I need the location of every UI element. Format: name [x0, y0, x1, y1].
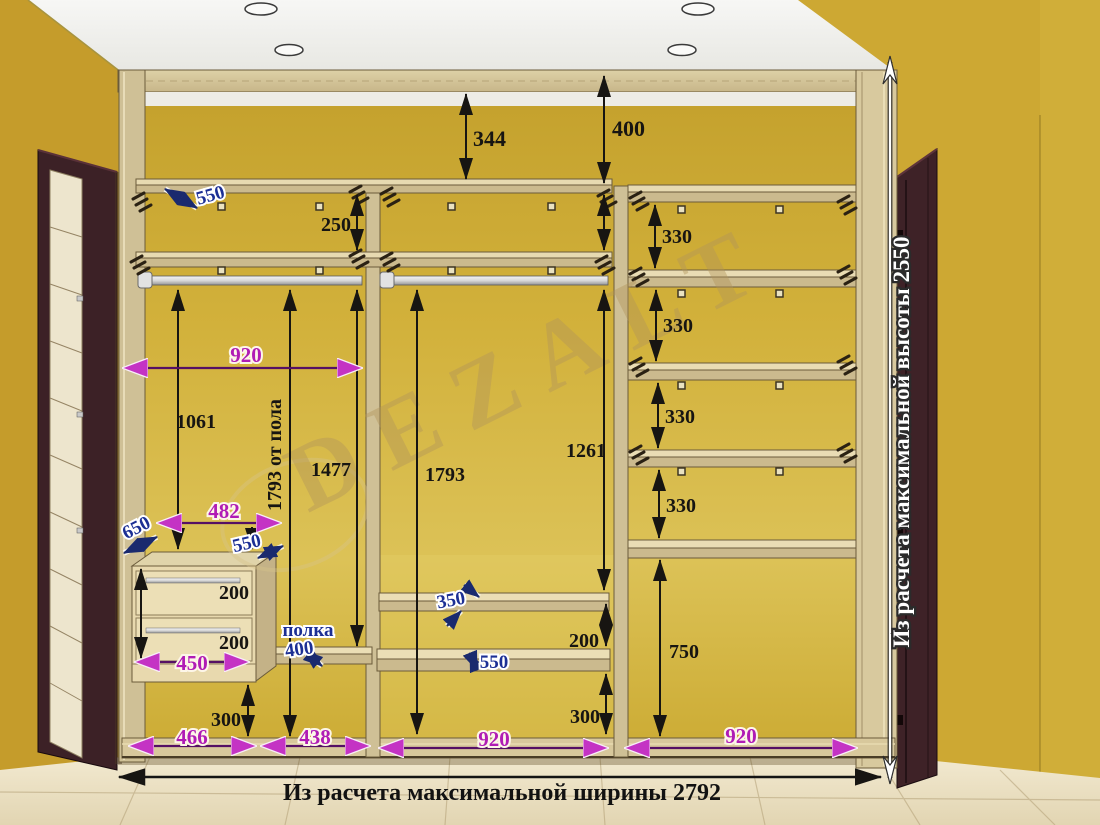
- s3-shelf-4-topface: [628, 540, 856, 548]
- second-shelf-front: [136, 258, 612, 267]
- wardrobe-drawing: DEZALT 344 400 250 330 330 330 330 750 1…: [0, 0, 1100, 825]
- top-shelf-left-topface: [136, 179, 612, 185]
- s3-shelf-3-front: [628, 457, 856, 467]
- dim-200-drawer2: 200: [219, 632, 249, 654]
- left-door: [38, 150, 122, 770]
- dim-438: 438: [299, 725, 331, 749]
- light-icon: [682, 3, 714, 15]
- left-door-panel: [50, 170, 82, 758]
- dim-250: 250: [321, 214, 351, 236]
- dim-1061: 1061: [176, 411, 216, 433]
- s2-shelf-350-front: [379, 601, 609, 611]
- light-icon: [275, 45, 303, 56]
- dim-466: 466: [176, 725, 208, 749]
- top-shelf-right-topface: [628, 185, 856, 192]
- dim-300-mid: 300: [570, 706, 600, 728]
- ceiling: [28, 0, 897, 73]
- dim-482: 482: [208, 499, 240, 523]
- dim-330-4: 330: [666, 495, 696, 517]
- left-door-hinge: [77, 296, 83, 301]
- dim-920-top: 920: [230, 343, 262, 367]
- left-door-hinge: [77, 412, 83, 417]
- dim-330-2: 330: [663, 315, 693, 337]
- dim-330-1: 330: [662, 226, 692, 248]
- rod-right-cap: [380, 272, 394, 288]
- dim-1261: 1261: [566, 440, 606, 462]
- dim-550-shelf: 550: [480, 652, 509, 673]
- left-door-hinge: [77, 528, 83, 533]
- dim-300-left: 300: [211, 709, 241, 731]
- right-wall-far-panel: [1040, 0, 1100, 825]
- rod-left: [140, 276, 362, 285]
- s3-shelf-4-front: [628, 548, 856, 558]
- dim-344: 344: [473, 126, 506, 151]
- dim-330-3: 330: [665, 406, 695, 428]
- s3-shelf-3-topface: [628, 450, 856, 457]
- light-icon: [245, 3, 277, 15]
- dim-200-drawer1: 200: [219, 582, 249, 604]
- dim-1477: 1477: [311, 459, 351, 481]
- dim-200-mid: 200: [569, 630, 599, 652]
- s3-shelf-2-topface: [628, 363, 856, 370]
- s3-shelf-2-front: [628, 370, 856, 380]
- light-icon: [668, 45, 696, 56]
- dim-750: 750: [669, 641, 699, 663]
- dim-920-mid: 920: [478, 727, 510, 751]
- overall-height-note: Из расчета максимальной высоты 2550: [889, 237, 914, 648]
- second-shelf-topface: [136, 252, 612, 258]
- dim-450: 450: [176, 651, 208, 675]
- dim-1793-pola: 1793 от пола: [264, 399, 286, 511]
- white-band: [122, 92, 895, 106]
- overall-width-note: Из расчета максимальной ширины 2792: [283, 780, 721, 806]
- dim-400-polka: 400: [284, 637, 315, 662]
- s2-shelf-350-topface: [379, 593, 609, 601]
- dim-400: 400: [612, 116, 645, 141]
- dim-1793: 1793: [425, 464, 465, 486]
- drawer-unit-top: [132, 552, 276, 566]
- dim-920-right: 920: [725, 724, 757, 748]
